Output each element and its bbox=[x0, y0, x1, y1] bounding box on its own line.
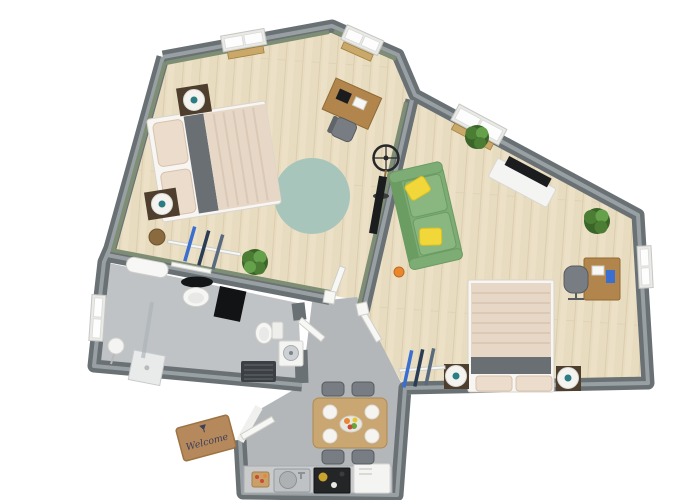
potted-plant bbox=[242, 249, 268, 275]
door-jamb bbox=[323, 290, 336, 304]
plate bbox=[323, 429, 337, 443]
bathroom-radiator bbox=[241, 361, 276, 382]
sink-basin bbox=[280, 472, 297, 489]
dining-chair bbox=[322, 450, 344, 464]
floor-plan-stage: Welcome bbox=[0, 0, 700, 500]
fruit-platter bbox=[340, 416, 362, 432]
desk-accessory bbox=[606, 270, 615, 283]
toilet-seat bbox=[259, 327, 269, 341]
bathroom-window bbox=[89, 295, 106, 342]
bed-pillow bbox=[476, 376, 512, 391]
potted-plant bbox=[584, 208, 610, 234]
lamp-center bbox=[565, 375, 572, 382]
bed-headboard bbox=[471, 357, 551, 374]
round-rug bbox=[274, 158, 350, 234]
yellow-pillow bbox=[419, 228, 441, 245]
bathroom-east-wall-upper bbox=[298, 303, 300, 320]
cutting-board bbox=[252, 472, 269, 487]
bed-pillow bbox=[516, 376, 552, 391]
basket bbox=[149, 229, 165, 245]
welcome-doormat: Welcome bbox=[176, 415, 237, 462]
lamp-center bbox=[159, 201, 166, 208]
dining-chair bbox=[322, 382, 344, 396]
bathroom-stool bbox=[108, 338, 124, 354]
dining-chair bbox=[352, 450, 374, 464]
door-jamb bbox=[356, 302, 369, 316]
oval-mirror bbox=[181, 277, 213, 288]
bed-pillow bbox=[152, 119, 189, 167]
plate bbox=[365, 405, 379, 419]
dining-chair bbox=[352, 382, 374, 396]
toilet-tank bbox=[272, 322, 283, 339]
floor-plan-canvas: Welcome bbox=[0, 0, 700, 500]
potted-plant bbox=[465, 125, 489, 149]
lamp-center bbox=[453, 373, 460, 380]
washer-door bbox=[289, 351, 293, 355]
plate bbox=[365, 429, 379, 443]
lamp-center bbox=[191, 97, 198, 104]
papers bbox=[592, 266, 604, 275]
sink-basin bbox=[188, 293, 204, 304]
plate bbox=[323, 405, 337, 419]
orange-stool bbox=[394, 267, 404, 277]
east-wall-window bbox=[637, 246, 653, 289]
cooktop bbox=[314, 468, 350, 493]
bed-duvet bbox=[471, 283, 551, 357]
living-area-bed bbox=[468, 280, 554, 392]
